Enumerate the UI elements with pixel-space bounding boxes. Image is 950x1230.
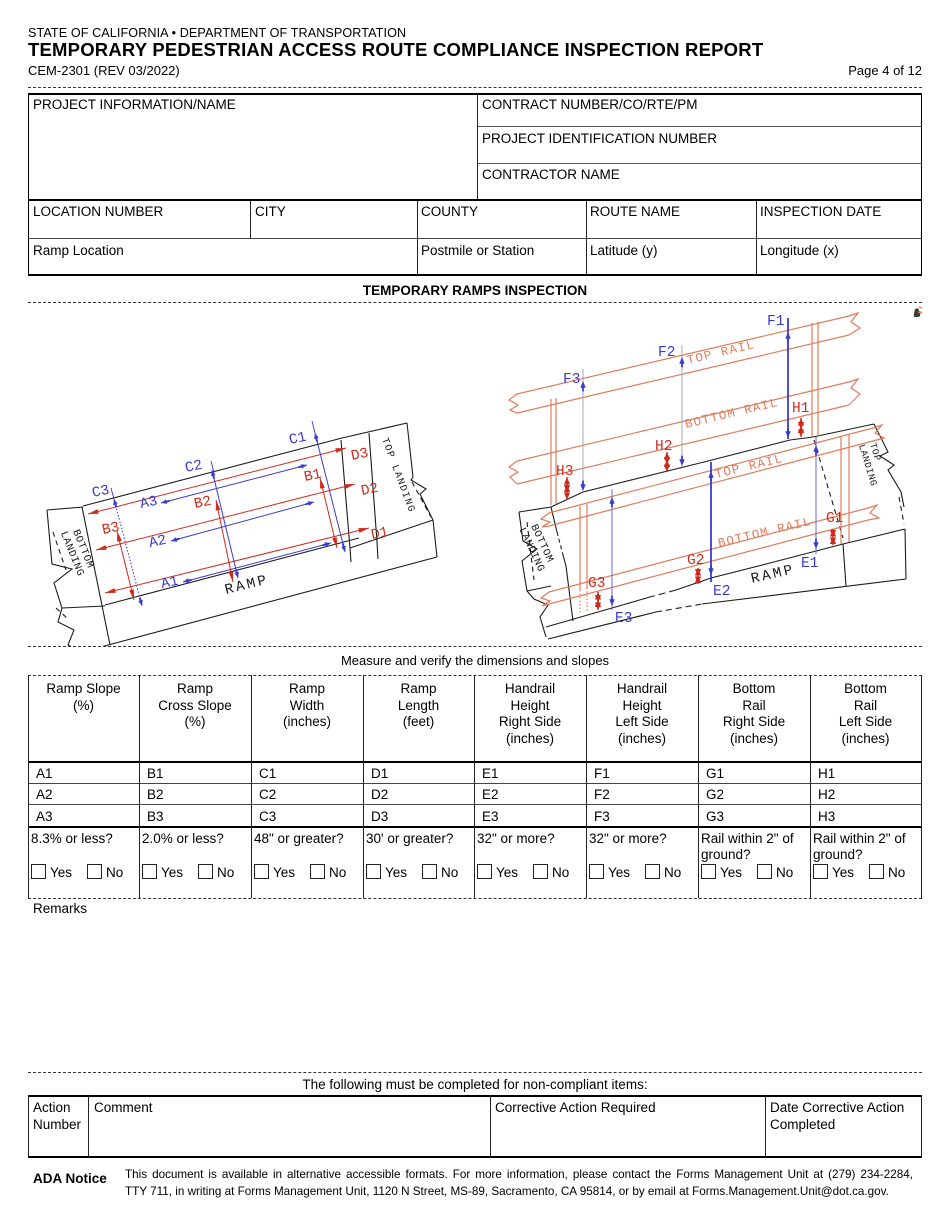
svg-text:BOTTOM RAIL: BOTTOM RAIL [717, 515, 813, 551]
svg-text:F1: F1 [767, 314, 784, 330]
svg-text:G1: G1 [826, 511, 843, 527]
svg-text:D3: D3 [350, 446, 370, 465]
svg-text:A3: A3 [139, 494, 159, 513]
svg-text:E1: E1 [801, 556, 818, 572]
svg-text:D1: D1 [370, 525, 390, 544]
svg-text:G3: G3 [588, 576, 605, 592]
svg-text:C1: C1 [288, 430, 308, 449]
svg-text:B2: B2 [193, 494, 213, 513]
svg-text:A1: A1 [160, 574, 180, 593]
svg-text:H2: H2 [655, 439, 672, 455]
svg-text:B1: B1 [303, 467, 323, 486]
svg-text:H3: H3 [556, 464, 573, 480]
svg-text:E3: E3 [615, 611, 632, 627]
svg-text:BOTTOM RAIL: BOTTOM RAIL [684, 396, 780, 432]
svg-text:D2: D2 [360, 481, 380, 500]
svg-text:F2: F2 [658, 345, 675, 361]
svg-text:G2: G2 [687, 553, 704, 569]
svg-text:TOP RAIL: TOP RAIL [686, 338, 757, 368]
svg-text:E2: E2 [713, 584, 730, 600]
svg-text:A2: A2 [148, 533, 168, 552]
svg-text:C2: C2 [184, 458, 204, 477]
svg-text:H1: H1 [792, 401, 809, 417]
svg-text:F3: F3 [563, 372, 580, 388]
svg-text:TOP LANDING: TOP LANDING [378, 437, 416, 515]
svg-text:RAMP: RAMP [223, 572, 270, 598]
